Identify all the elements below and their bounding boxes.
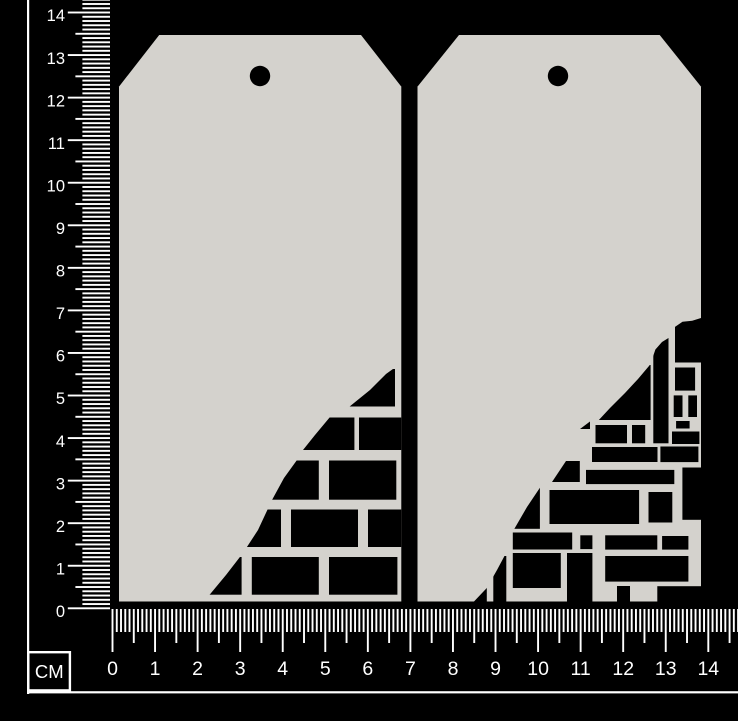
svg-text:4: 4 [56, 433, 65, 451]
svg-text:11: 11 [48, 135, 65, 153]
svg-text:13: 13 [47, 50, 65, 68]
svg-text:CM: CM [35, 661, 64, 682]
svg-text:7: 7 [56, 305, 65, 323]
svg-text:7: 7 [405, 658, 416, 680]
svg-text:13: 13 [655, 658, 677, 680]
svg-text:1: 1 [150, 658, 161, 680]
svg-text:12: 12 [47, 92, 65, 110]
svg-text:14: 14 [47, 7, 65, 25]
svg-text:2: 2 [192, 658, 203, 680]
svg-text:8: 8 [56, 263, 65, 281]
svg-text:10: 10 [527, 658, 549, 680]
svg-text:1: 1 [56, 560, 65, 578]
svg-text:10: 10 [47, 177, 65, 195]
svg-text:4: 4 [277, 658, 288, 680]
svg-text:6: 6 [362, 658, 373, 680]
svg-text:6: 6 [56, 348, 65, 366]
svg-text:11: 11 [570, 658, 590, 680]
svg-text:8: 8 [448, 658, 459, 680]
svg-text:5: 5 [56, 390, 65, 408]
svg-text:14: 14 [697, 658, 719, 680]
svg-text:2: 2 [56, 518, 65, 536]
svg-text:5: 5 [320, 658, 331, 680]
svg-text:3: 3 [56, 475, 65, 493]
svg-text:0: 0 [107, 658, 118, 680]
svg-text:12: 12 [612, 658, 634, 680]
svg-text:9: 9 [490, 658, 501, 680]
svg-text:9: 9 [56, 220, 65, 238]
svg-text:0: 0 [56, 603, 65, 621]
svg-text:3: 3 [235, 658, 246, 680]
